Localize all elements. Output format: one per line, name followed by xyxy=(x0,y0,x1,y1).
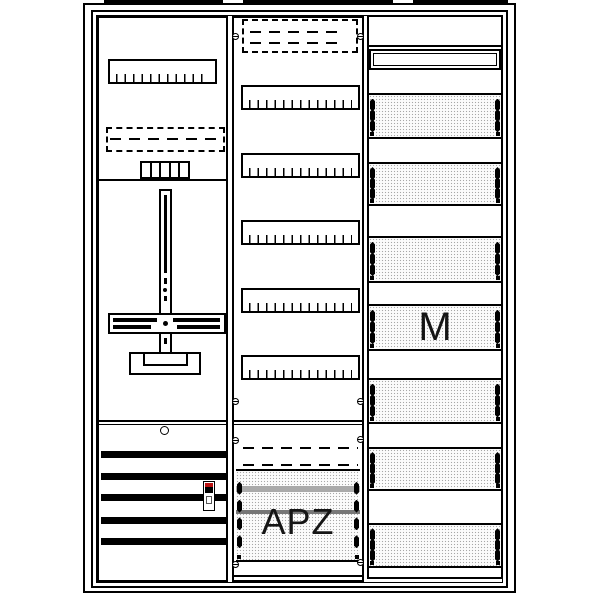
apz-cover-panel: APZ xyxy=(236,469,360,562)
panel-clip-icon xyxy=(370,120,375,133)
panel-clip-icon xyxy=(370,405,375,418)
din-rail xyxy=(241,220,360,245)
section-divider xyxy=(234,420,362,425)
panel-clip-icon xyxy=(237,535,242,548)
left-section xyxy=(97,16,228,582)
meter-cabinet-drawing: APZ M xyxy=(0,0,600,600)
blank-cover-strip xyxy=(369,49,501,70)
panel-clip-icon xyxy=(495,263,500,276)
dashed-cover-line xyxy=(243,447,358,449)
panel-clip-icon xyxy=(354,500,359,513)
panel-clip-icon xyxy=(495,549,500,562)
panel-clip-icon xyxy=(370,187,375,200)
panel-clip-icon xyxy=(495,120,500,133)
stippled-cover-panel xyxy=(369,523,501,568)
stippled-cover-panel xyxy=(369,162,501,206)
panel-clip-icon xyxy=(370,263,375,276)
dashed-line xyxy=(250,31,342,33)
stippled-cover-panel xyxy=(369,447,501,491)
panel-clip-icon xyxy=(495,331,500,344)
busbar xyxy=(101,538,228,545)
m-label: M xyxy=(369,306,501,349)
meter-cross-base xyxy=(129,352,201,375)
dashed-line xyxy=(110,138,221,140)
busbar xyxy=(101,517,228,524)
middle-section: APZ xyxy=(232,16,364,582)
din-rail xyxy=(241,85,360,110)
apz-label: APZ xyxy=(236,471,360,560)
slotted-screw-icon xyxy=(357,559,364,566)
slotted-screw-icon xyxy=(357,436,364,443)
slotted-screw-icon xyxy=(232,437,239,444)
panel-clip-icon xyxy=(237,517,242,530)
busbar xyxy=(101,451,228,458)
section-divider xyxy=(369,45,501,47)
panel-clip-icon xyxy=(237,482,242,495)
right-section: M xyxy=(367,15,503,579)
meter-cross-horizontal xyxy=(108,313,226,334)
reserved-area-dashed xyxy=(242,19,358,53)
panel-clip-icon xyxy=(370,472,375,485)
din-rail xyxy=(241,153,360,178)
stippled-cover-panel xyxy=(369,378,501,424)
slotted-screw-icon xyxy=(357,398,364,405)
stippled-cover-panel xyxy=(369,93,501,139)
panel-clip-icon xyxy=(354,535,359,548)
slotted-screw-icon xyxy=(232,561,239,568)
panel-clip-icon xyxy=(495,405,500,418)
din-rail xyxy=(241,288,360,313)
panel-clip-icon xyxy=(370,331,375,344)
section-divider xyxy=(99,179,226,181)
panel-clip-icon xyxy=(237,500,242,513)
section-divider xyxy=(99,420,226,425)
stippled-cover-panel xyxy=(369,236,501,283)
slotted-screw-icon xyxy=(232,398,239,405)
terminal-block xyxy=(140,161,190,179)
dashed-line xyxy=(250,42,342,44)
panel-clip-icon xyxy=(495,187,500,200)
reserved-area-dashed xyxy=(106,127,225,152)
section-divider xyxy=(234,575,362,577)
panel-clip-icon xyxy=(370,549,375,562)
panel-clip-icon xyxy=(354,482,359,495)
slotted-screw-icon xyxy=(232,33,239,40)
panel-clip-icon xyxy=(495,472,500,485)
dashed-cover-line xyxy=(243,464,358,466)
din-rail xyxy=(108,59,217,84)
sls-main-switch xyxy=(203,481,215,511)
slotted-screw-icon xyxy=(357,33,364,40)
m-cover-panel: M xyxy=(369,304,501,351)
lock-hole-icon xyxy=(160,426,169,435)
din-rail xyxy=(241,355,360,380)
panel-clip-icon xyxy=(354,517,359,530)
busbar xyxy=(101,473,228,480)
